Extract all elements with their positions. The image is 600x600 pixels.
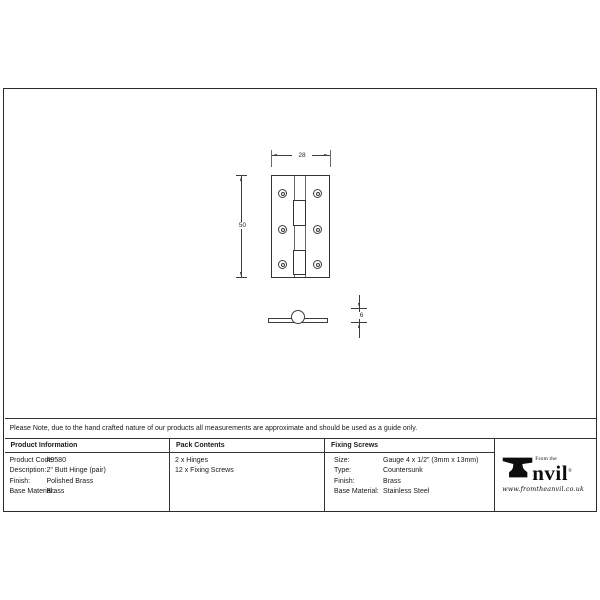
header-pack-contents: Pack Contents: [170, 439, 325, 453]
table-row: Product Code:49580: [5, 456, 170, 466]
row-value: Polished Brass: [47, 478, 94, 485]
table-row: Base Material:Brass: [5, 487, 170, 497]
row-label: Description:: [10, 466, 47, 476]
row-value: Stainless Steel: [383, 488, 429, 495]
anvil-logo-icon: [502, 455, 533, 485]
header-product-information: Product Information: [5, 439, 171, 453]
row-value: Countersunk: [383, 467, 423, 474]
table-row: Description:2" Butt Hinge (pair): [5, 466, 170, 476]
row-value: 49580: [47, 457, 66, 464]
row-label: Finish:: [334, 477, 383, 487]
pack-contents-body: 2 x Hinges 12 x Fixing Screws: [170, 453, 325, 511]
logo-website: www.fromtheanvil.co.uk: [502, 486, 588, 494]
measurement-note: Please Note, due to the hand crafted nat…: [5, 418, 596, 438]
table-row: Finish:Polished Brass: [5, 477, 170, 487]
dim-width-arrow-right: [324, 154, 328, 156]
spec-table: Product Information Pack Contents Fixing…: [5, 438, 596, 511]
row-label: Type:: [334, 466, 383, 476]
pack-item: 12 x Fixing Screws: [170, 466, 324, 476]
dim-thickness-arrow-top: [358, 303, 360, 307]
hinge-knuckle-lower: [293, 250, 307, 275]
screw-hole: [278, 225, 287, 234]
fixing-screws-body: Size:Gauge 4 x 1/2" (3mm x 13mm) Type:Co…: [325, 453, 495, 511]
brand-logo: From the nvil® www.fromtheanvil.co.uk: [495, 439, 596, 511]
row-label: Product Code:: [10, 456, 47, 466]
row-value: 2" Butt Hinge (pair): [47, 467, 106, 474]
screw-hole: [278, 260, 287, 269]
screw-hole: [278, 189, 287, 198]
row-value: Gauge 4 x 1/2" (3mm x 13mm): [383, 457, 478, 464]
screw-hole: [313, 189, 322, 198]
dim-thickness-tick-bottom: [351, 322, 367, 323]
dim-thickness-arrow-bottom: [358, 324, 360, 328]
row-label: Base Material:: [10, 487, 47, 497]
screw-hole: [313, 260, 322, 269]
dim-width-label: 28: [292, 152, 312, 159]
dim-height-label: 50: [233, 222, 252, 229]
row-label: Base Material:: [334, 487, 383, 497]
dim-thickness-label: 6: [355, 312, 368, 319]
dim-thickness-tick-top: [351, 308, 367, 309]
registered-mark: ®: [568, 469, 572, 474]
dim-width-extension-right: [330, 150, 331, 167]
logo-wordmark: nvil®: [532, 461, 572, 485]
dim-width-arrow-left: [273, 154, 277, 156]
table-row: Size:Gauge 4 x 1/2" (3mm x 13mm): [325, 456, 494, 466]
row-label: Finish:: [10, 477, 47, 487]
table-row: Type:Countersunk: [325, 466, 494, 476]
dim-height-arrow-bottom: [240, 272, 242, 276]
table-row: Finish:Brass: [325, 477, 494, 487]
from-the-anvil-logo: From the nvil® www.fromtheanvil.co.uk: [502, 455, 588, 494]
screw-hole: [313, 225, 322, 234]
product-information-body: Product Code:49580 Description:2" Butt H…: [5, 453, 171, 511]
pack-item: 2 x Hinges: [170, 456, 324, 466]
dim-height-arrow-top: [240, 177, 242, 181]
hinge-knuckle-upper: [293, 200, 307, 226]
header-fixing-screws: Fixing Screws: [325, 439, 495, 453]
hinge-side-knuckle: [291, 310, 305, 324]
row-label: Size:: [334, 456, 383, 466]
row-value: Brass: [47, 488, 65, 495]
dim-width-extension-left: [271, 150, 272, 167]
row-value: Brass: [383, 478, 401, 485]
table-row: Base Material:Stainless Steel: [325, 487, 494, 497]
